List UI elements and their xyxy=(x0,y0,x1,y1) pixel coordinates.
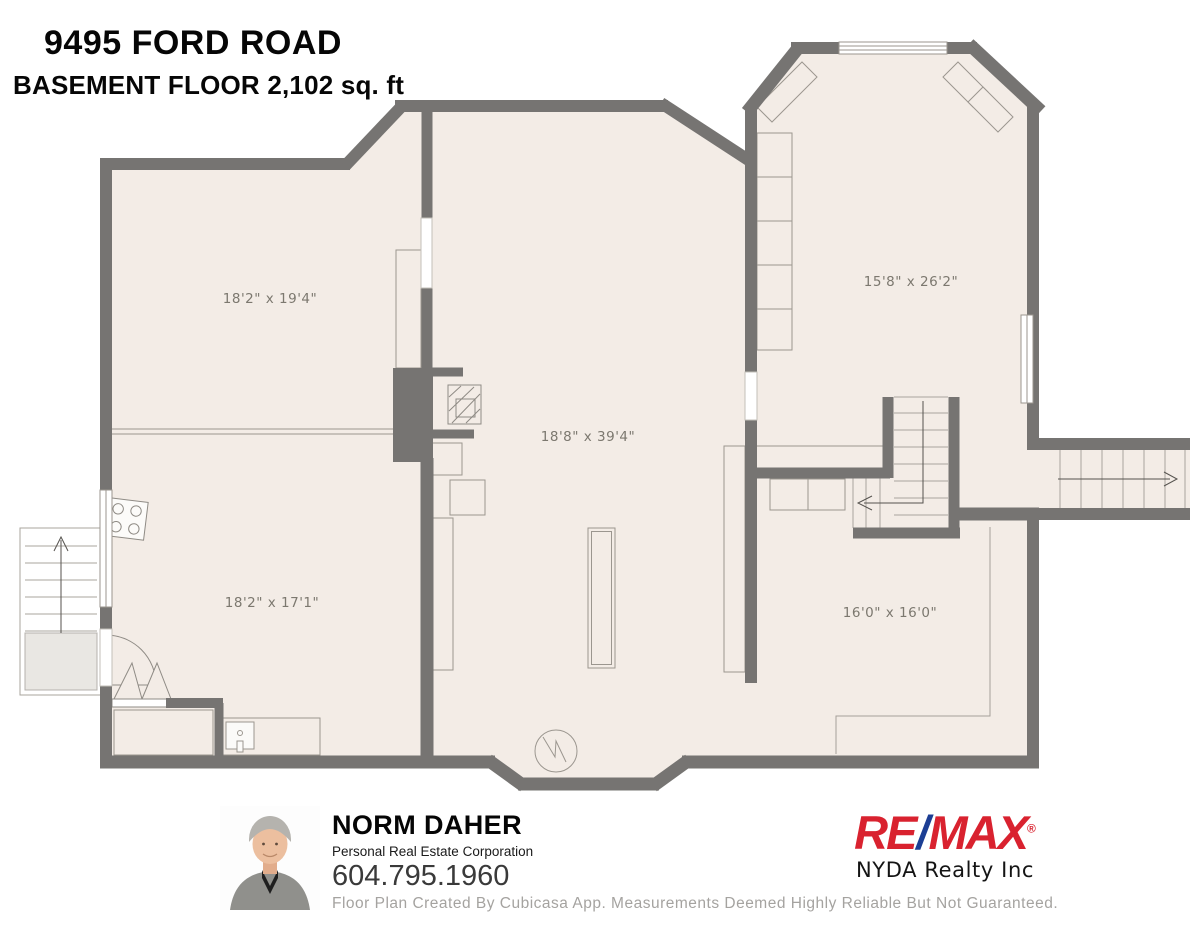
remax-slash: / xyxy=(915,806,928,859)
room-dimension-label: 15'8" x 26'2" xyxy=(864,274,958,290)
disclaimer-text: Floor Plan Created By Cubicasa App. Meas… xyxy=(332,895,1058,913)
closet-floor xyxy=(114,710,213,755)
wall-opening xyxy=(745,372,757,420)
shelving-column xyxy=(757,133,792,350)
window-icon xyxy=(100,490,112,607)
remax-re: RE xyxy=(854,806,915,859)
agent-photo xyxy=(220,806,320,910)
fireplace-icon xyxy=(448,385,481,424)
window-icon xyxy=(1021,315,1033,403)
agent-title: Personal Real Estate Corporation xyxy=(332,844,533,859)
room-dimension-label: 16'0" x 16'0" xyxy=(843,605,937,621)
window-icon xyxy=(839,42,947,54)
room-dimension-label: 18'2" x 19'4" xyxy=(223,291,317,307)
registered-mark: ® xyxy=(1027,821,1036,835)
room-dimension-label: 18'2" x 17'1" xyxy=(225,595,319,611)
brokerage-block: RE/MAX® NYDA Realty Inc xyxy=(795,808,1095,882)
agent-portrait xyxy=(220,806,320,910)
cabinet xyxy=(724,446,745,672)
island-counter xyxy=(588,528,615,668)
water-heater-icon xyxy=(535,730,577,772)
floor-plan: 18'2" x 19'4" 18'8" x 39'4" 15'8" x 26'2… xyxy=(0,0,1200,795)
building-footprint xyxy=(100,42,1190,790)
cabinet xyxy=(770,479,808,510)
agent-phone: 604.795.1960 xyxy=(332,860,509,893)
brokerage-name: NYDA Realty Inc xyxy=(795,858,1095,882)
door-opening xyxy=(100,629,112,686)
cabinet xyxy=(450,480,485,515)
agent-name: NORM DAHER xyxy=(332,810,522,841)
remax-logo: RE/MAX® xyxy=(795,808,1095,857)
cabinet xyxy=(396,250,421,368)
sink-counter xyxy=(223,718,320,755)
exterior-stairs-left xyxy=(20,528,101,695)
cabinet xyxy=(808,479,845,510)
room-dimension-label: 18'8" x 39'4" xyxy=(541,429,635,445)
remax-max: MAX xyxy=(929,806,1027,859)
floor-area xyxy=(100,42,1190,790)
wall-opening xyxy=(421,218,432,288)
floorplan-page: 9495 FORD ROAD BASEMENT FLOOR 2,102 sq. … xyxy=(0,0,1200,927)
